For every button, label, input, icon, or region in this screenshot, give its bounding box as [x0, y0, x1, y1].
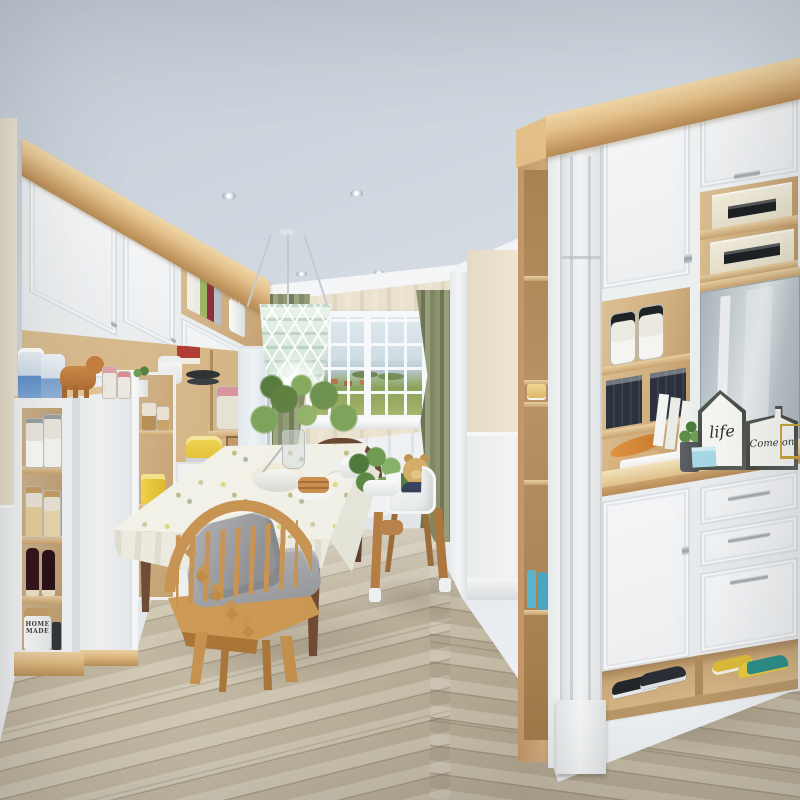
wine-bottle	[42, 550, 55, 596]
recessed-light-icon	[350, 190, 363, 197]
base-door-knob	[682, 545, 689, 555]
home-made-canister: HOME MADE	[24, 608, 51, 650]
water-bottle	[638, 303, 664, 361]
highchair-tray	[363, 480, 399, 496]
blue-rain-boots	[527, 570, 536, 608]
display-interior	[524, 170, 548, 740]
pancake-stack	[298, 477, 329, 493]
box-label	[724, 243, 780, 264]
storage-jar-flour	[43, 414, 62, 468]
alcove-divider	[695, 655, 703, 696]
room-photo: HOME MADE	[0, 0, 800, 800]
small-pink-jar	[102, 366, 117, 399]
recessed-light-icon	[222, 192, 236, 200]
display-shelf	[524, 402, 548, 407]
cake-on-shelf	[527, 384, 546, 398]
storage-jar-flour	[25, 418, 44, 468]
binder-row	[606, 375, 642, 429]
base-door-left	[602, 487, 690, 672]
pilaster-groove	[570, 156, 573, 756]
small-plant	[130, 362, 152, 382]
tower-frame: HOME MADE	[14, 398, 80, 676]
highchair-foot-tip	[439, 578, 451, 592]
shelf-board	[22, 596, 62, 604]
pilaster-joint	[560, 256, 602, 259]
highchair-foot-tip	[369, 588, 381, 602]
black-scoop	[52, 622, 61, 650]
blue-note-card	[691, 446, 716, 467]
highchair-footrest	[380, 520, 403, 535]
right-pilaster	[560, 146, 602, 772]
box-label	[728, 199, 776, 219]
shelf-divider	[210, 350, 213, 440]
house-sign-text: life	[697, 420, 746, 442]
pilaster-groove	[588, 156, 591, 756]
canister-label: HOME MADE	[24, 621, 51, 635]
pendant-cord	[287, 234, 289, 306]
gold-wire-rack	[780, 424, 800, 459]
stacked-pans	[186, 370, 220, 379]
hall-baseboard	[467, 578, 521, 600]
small-pink-jar	[117, 371, 131, 399]
box-recess	[700, 176, 798, 283]
teddy-bear-muzzle	[411, 470, 422, 479]
recessed-light-icon	[296, 271, 307, 277]
display-shelf	[524, 276, 548, 281]
wine-bottle	[26, 548, 39, 596]
hall-wainscot	[467, 432, 521, 594]
base-door-right	[700, 557, 798, 653]
mid-cubbies	[602, 287, 690, 480]
display-shelf	[524, 480, 548, 485]
toy-elephant-legs	[62, 386, 94, 398]
display-shelf	[524, 610, 548, 615]
glass-jar-brown	[156, 406, 170, 431]
pilaster-plinth	[556, 700, 606, 774]
door-hinge-knob	[684, 253, 692, 264]
hall-wall	[467, 250, 521, 435]
black-sneaker	[639, 664, 686, 691]
cookie-jar	[25, 486, 43, 538]
cookie-jar	[43, 490, 61, 538]
water-bottle	[610, 310, 636, 366]
glass-jar-brown	[141, 402, 157, 431]
tower-plinth	[14, 652, 84, 676]
small-plant-pot	[133, 380, 148, 397]
